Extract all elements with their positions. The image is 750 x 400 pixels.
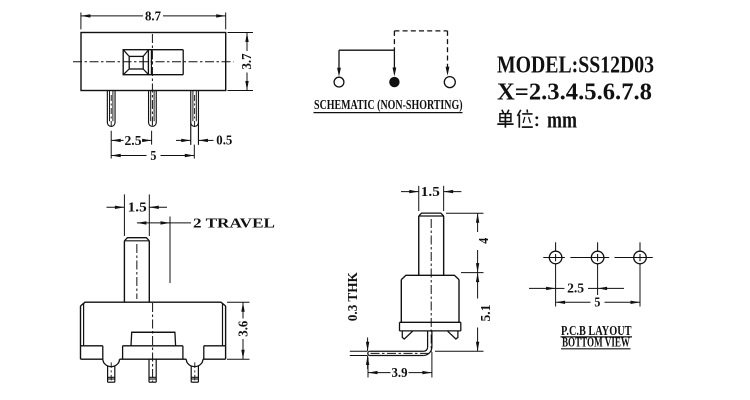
svg-text:0.5: 0.5 — [216, 133, 232, 148]
svg-text:2.5: 2.5 — [567, 281, 584, 296]
svg-text:3.6: 3.6 — [235, 320, 250, 336]
svg-text:SCHEMATIC (NON-SHORTING): SCHEMATIC (NON-SHORTING) — [314, 97, 463, 112]
svg-text:5.1: 5.1 — [478, 304, 493, 321]
svg-text:3.7: 3.7 — [239, 53, 254, 69]
svg-text:8.7: 8.7 — [145, 8, 161, 23]
svg-text:0.3 THK: 0.3 THK — [345, 272, 360, 321]
svg-text:2 TRAVEL: 2 TRAVEL — [193, 215, 275, 230]
svg-text:1.5: 1.5 — [128, 200, 147, 215]
svg-text:5: 5 — [150, 148, 156, 163]
svg-text:X=2.3.4.5.6.7.8: X=2.3.4.5.6.7.8 — [497, 79, 652, 106]
svg-text:5: 5 — [594, 295, 600, 310]
svg-text:1.5: 1.5 — [421, 184, 440, 199]
svg-text:MODEL:SS12D03: MODEL:SS12D03 — [497, 52, 654, 79]
svg-text:3.9: 3.9 — [392, 365, 408, 380]
svg-text:mm: mm — [547, 106, 577, 133]
svg-text:4: 4 — [476, 238, 491, 244]
svg-text:BOTTOM VIEW: BOTTOM VIEW — [562, 335, 630, 350]
svg-text:2.5: 2.5 — [125, 133, 142, 148]
